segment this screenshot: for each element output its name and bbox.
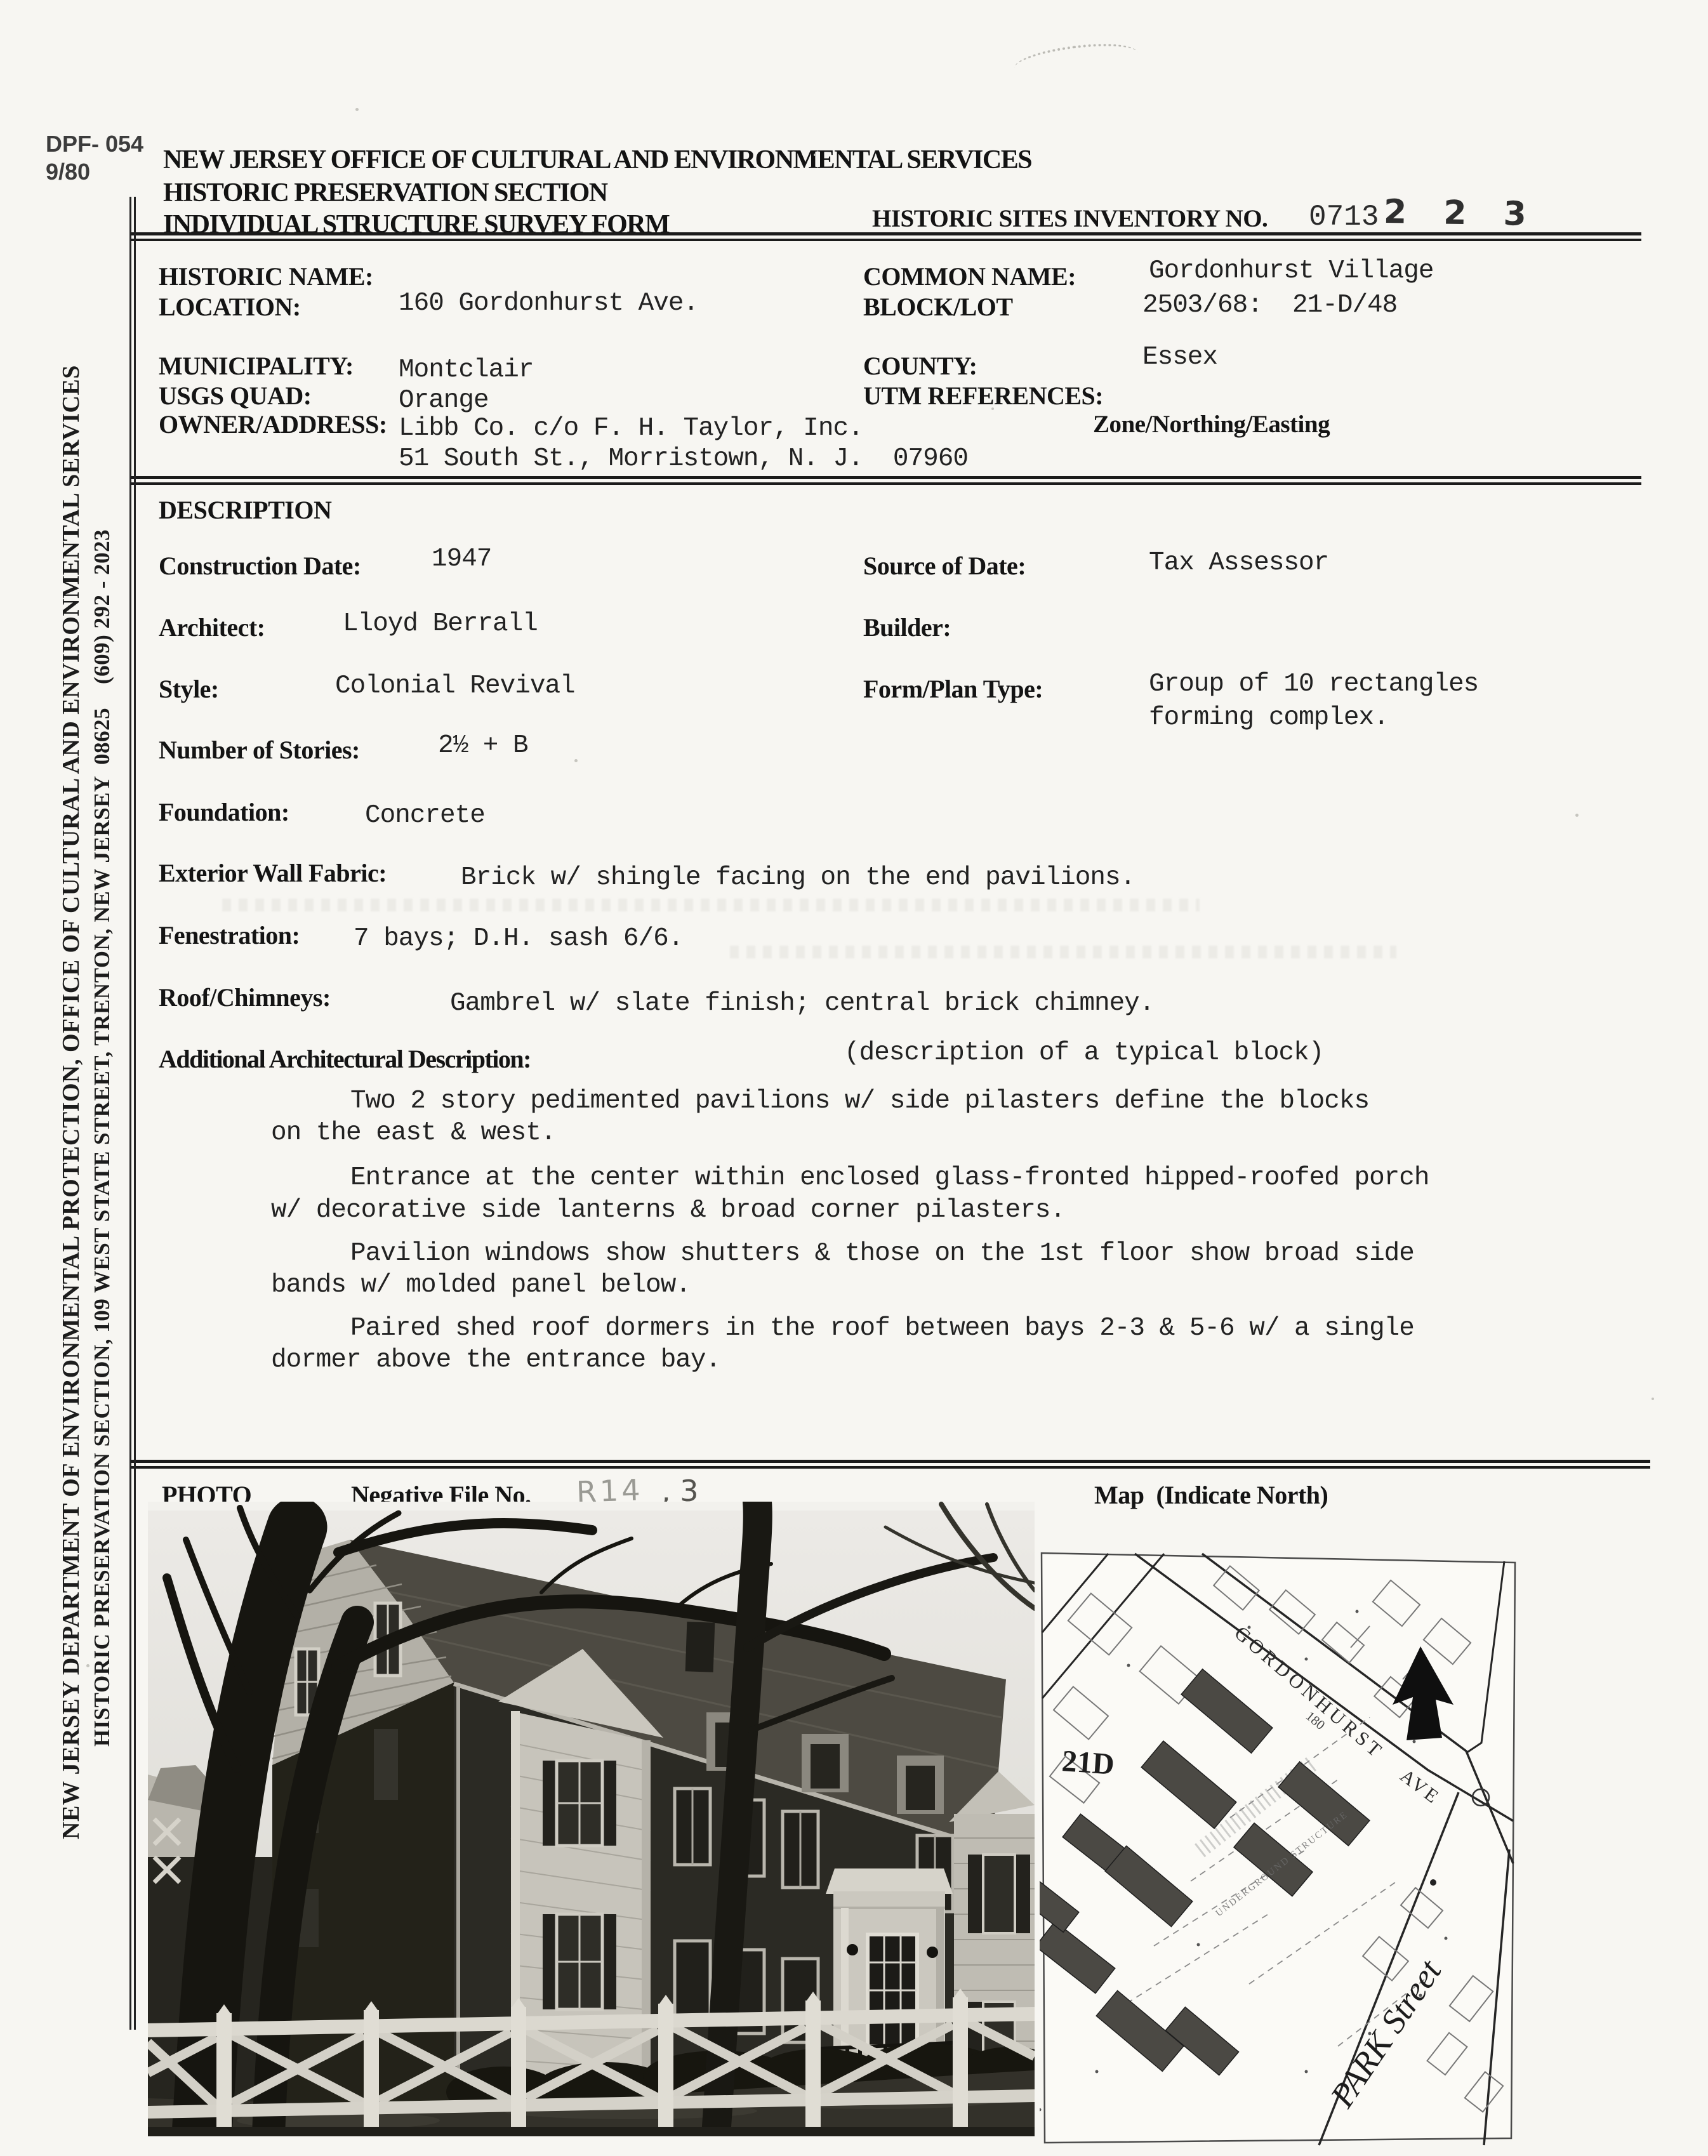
scan-speck bbox=[814, 154, 816, 156]
utm-zone-sublabel: Zone/Northing/Easting bbox=[1093, 410, 1330, 439]
architect-label: Architect: bbox=[159, 612, 265, 642]
sidebar-department-line: NEW JERSEY DEPARTMENT OF ENVIRONMENTAL P… bbox=[57, 360, 85, 1839]
form-plan-type-value-line1: Group of 10 rectangles bbox=[1149, 670, 1478, 699]
county-value: Essex bbox=[1142, 343, 1217, 372]
block-21d-label: 21D bbox=[1061, 1744, 1115, 1782]
photo-image bbox=[148, 1502, 1035, 2136]
description-paragraph-line: Entrance at the center within enclosed g… bbox=[350, 1163, 1429, 1193]
foundation-value: Concrete bbox=[365, 801, 485, 830]
description-paragraph-line: Pavilion windows show shutters & those o… bbox=[350, 1239, 1414, 1268]
stories-value: 2½ + B bbox=[438, 731, 528, 760]
owner-address-label: OWNER/ADDRESS: bbox=[159, 409, 387, 439]
foundation-label: Foundation: bbox=[159, 797, 289, 827]
sidebar-address-line: HISTORIC PRESERVATION SECTION, 109 WEST … bbox=[89, 369, 115, 1747]
stories-label: Number of Stories: bbox=[159, 735, 360, 765]
additional-description-label: Additional Architectural Description: bbox=[159, 1044, 531, 1074]
divider-photo bbox=[129, 1460, 1650, 1469]
scan-speck bbox=[991, 407, 994, 410]
map-label: Map (Indicate North) bbox=[1094, 1480, 1328, 1510]
photo-scene bbox=[148, 1502, 1035, 2136]
style-value: Colonial Revival bbox=[335, 671, 575, 701]
construction-date-value: 1947 bbox=[432, 545, 491, 574]
usgs-quad-value: Orange bbox=[399, 386, 489, 415]
description-heading: DESCRIPTION bbox=[159, 495, 331, 525]
location-label: LOCATION: bbox=[159, 292, 301, 322]
additional-description-note: (description of a typical block) bbox=[844, 1038, 1323, 1068]
inventory-number-label: HISTORIC SITES INVENTORY NO. bbox=[872, 204, 1268, 233]
chimney bbox=[685, 1622, 715, 1672]
scan-speck bbox=[1575, 814, 1579, 817]
description-paragraph-line: Two 2 story pedimented pavilions w/ side… bbox=[350, 1087, 1369, 1116]
form-plan-type-value-line2: forming complex. bbox=[1149, 703, 1389, 732]
header-agency: NEW JERSEY OFFICE OF CULTURAL AND ENVIRO… bbox=[163, 145, 1031, 175]
utm-references-label: UTM REFERENCES: bbox=[863, 381, 1103, 411]
wall-fabric-label: Exterior Wall Fabric: bbox=[159, 858, 387, 888]
description-paragraph-line: on the east & west. bbox=[271, 1118, 555, 1147]
description-paragraph-line: Paired shed roof dormers in the roof bet… bbox=[350, 1314, 1414, 1343]
common-name-value: Gordonhurst Village bbox=[1149, 256, 1433, 286]
scan-noise-squiggle bbox=[1013, 38, 1139, 82]
roof-chimneys-label: Roof/Chimneys: bbox=[159, 982, 331, 1012]
usgs-quad-label: USGS QUAD: bbox=[159, 381, 312, 411]
construction-date-label: Construction Date: bbox=[159, 551, 361, 581]
scan-speck bbox=[1652, 1398, 1654, 1400]
divider-identification bbox=[129, 476, 1641, 485]
source-of-date-value: Tax Assessor bbox=[1149, 548, 1328, 578]
inventory-number-handwritten: 2 2 3 bbox=[1383, 193, 1539, 234]
municipality-label: MUNICIPALITY: bbox=[159, 351, 354, 381]
description-paragraph-line: w/ decorative side lanterns & broad corn… bbox=[271, 1196, 1065, 1225]
header-section: HISTORIC PRESERVATION SECTION bbox=[163, 178, 607, 208]
block-lot-label: BLOCK/LOT bbox=[863, 292, 1013, 322]
divider-top bbox=[129, 232, 1641, 241]
scan-speck bbox=[86, 1664, 89, 1667]
form-plan-type-label: Form/Plan Type: bbox=[863, 674, 1043, 704]
scanned-survey-form: { "corner": { "code": "DPF- 054", "rev":… bbox=[0, 0, 1708, 2156]
scan-speck bbox=[343, 1210, 345, 1212]
map-image: GORDONHURST AVE 180 21D PARK Street UNDE… bbox=[1040, 1551, 1518, 2148]
owner-address-value-line2: 51 South St., Morristown, N. J. 07960 bbox=[399, 444, 968, 473]
form-code: DPF- 054 bbox=[46, 131, 143, 157]
ink-bleed-ghost-line bbox=[222, 899, 1200, 911]
description-paragraph-line: bands w/ molded panel below. bbox=[271, 1271, 691, 1300]
form-revision-date: 9/80 bbox=[46, 159, 90, 185]
inventory-number-prefix: 0713 bbox=[1309, 201, 1379, 234]
style-label: Style: bbox=[159, 674, 219, 704]
location-value: 160 Gordonhurst Ave. bbox=[399, 289, 698, 318]
municipality-value: Montclair bbox=[399, 355, 533, 385]
historic-name-label: HISTORIC NAME: bbox=[159, 261, 373, 291]
wall-fabric-value: Brick w/ shingle facing on the end pavil… bbox=[461, 863, 1135, 892]
builder-label: Builder: bbox=[863, 612, 951, 642]
source-of-date-label: Source of Date: bbox=[863, 551, 1026, 581]
photo-bottom-shadow bbox=[148, 2127, 1035, 2136]
fenestration-label: Fenestration: bbox=[159, 920, 300, 950]
scan-speck bbox=[574, 759, 578, 762]
scan-speck bbox=[355, 108, 359, 111]
left-margin-rule bbox=[129, 197, 136, 2030]
owner-address-value-line1: Libb Co. c/o F. H. Taylor, Inc. bbox=[399, 414, 863, 443]
block-lot-value: 2503/68: 21-D/48 bbox=[1142, 291, 1397, 320]
county-label: COUNTY: bbox=[863, 351, 977, 381]
map-dot bbox=[1430, 1879, 1436, 1886]
ink-bleed-ghost-line bbox=[730, 946, 1396, 958]
roof-chimneys-value: Gambrel w/ slate finish; central brick c… bbox=[450, 989, 1154, 1018]
porch-lantern bbox=[927, 1947, 938, 1958]
fenestration-value: 7 bays; D.H. sash 6/6. bbox=[354, 924, 683, 953]
common-name-label: COMMON NAME: bbox=[863, 261, 1076, 291]
description-paragraph-line: dormer above the entrance bay. bbox=[271, 1346, 720, 1375]
porch-lantern bbox=[847, 1944, 858, 1955]
architect-value: Lloyd Berrall bbox=[343, 609, 538, 638]
